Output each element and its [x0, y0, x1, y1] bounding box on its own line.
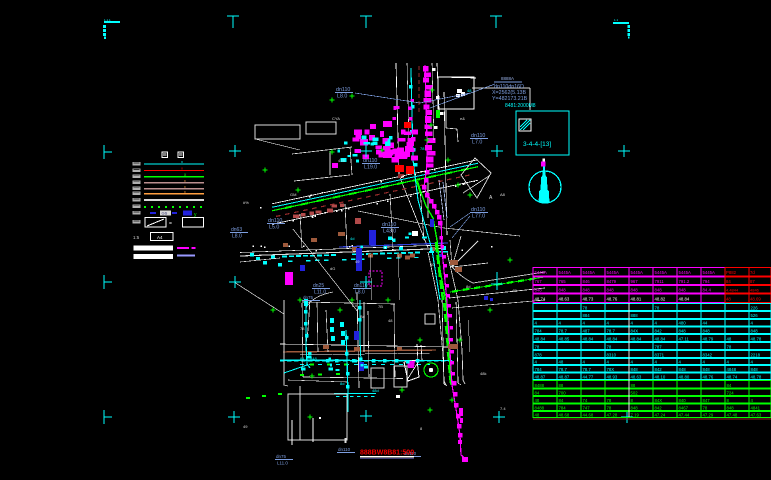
svg-text:48k: 48k [480, 371, 486, 376]
svg-text:CYA: CYA [332, 116, 340, 121]
svg-text:848: 848 [631, 406, 639, 411]
svg-text:L8.0: L8.0 [337, 94, 347, 100]
svg-text:8479: 8479 [607, 279, 617, 284]
svg-text:48.63: 48.63 [559, 297, 570, 302]
svg-text:48.93: 48.93 [607, 375, 618, 380]
svg-text:48.87: 48.87 [535, 375, 546, 380]
svg-text:3-4-4-[13]: 3-4-4-[13] [523, 141, 551, 148]
svg-text:5445A: 5445A [559, 270, 572, 275]
svg-text:x: x [184, 179, 186, 183]
svg-text:Y=482173.21B: Y=482173.21B [492, 96, 528, 102]
svg-text:A4: A4 [157, 235, 163, 240]
svg-text:48.76: 48.76 [703, 375, 714, 380]
svg-text:840: 840 [679, 398, 687, 403]
svg-text:846: 846 [583, 279, 591, 284]
svg-text:x: x [181, 159, 183, 164]
svg-text:848: 848 [631, 288, 639, 293]
svg-text:8467: 8467 [679, 406, 689, 411]
svg-text:47.11: 47.11 [679, 337, 690, 342]
svg-text:47.28: 47.28 [607, 413, 618, 418]
svg-text:784: 784 [535, 367, 543, 372]
svg-text:GM: GM [290, 192, 296, 197]
svg-text:L19.0: L19.0 [364, 165, 377, 171]
svg-text:48.85: 48.85 [559, 337, 570, 342]
svg-text:dn110: dn110 [471, 133, 485, 139]
svg-text:848: 848 [631, 367, 639, 372]
svg-text:44.77: 44.77 [583, 375, 594, 380]
svg-text:88: 88 [559, 383, 564, 388]
svg-text:dn63: dn63 [231, 227, 242, 233]
svg-text:78: 78 [583, 306, 588, 311]
svg-text:848: 848 [703, 329, 711, 334]
svg-text:48: 48 [467, 88, 472, 93]
svg-text:78X: 78X [607, 367, 615, 372]
svg-text:dn75: dn75 [303, 295, 314, 300]
svg-text:848: 848 [679, 367, 687, 372]
svg-text:L5.0: L5.0 [269, 225, 279, 231]
svg-text:48.69: 48.69 [750, 297, 761, 302]
svg-text:784: 784 [535, 329, 543, 334]
svg-text:784: 784 [559, 406, 567, 411]
svg-text:48.87: 48.87 [559, 375, 570, 380]
svg-text:8342: 8342 [703, 353, 713, 358]
svg-text:794: 794 [703, 279, 711, 284]
svg-text:44.68: 44.68 [583, 413, 594, 418]
svg-text:78.7: 78.7 [559, 329, 568, 334]
svg-text:226: 226 [751, 306, 759, 311]
svg-text:5445A: 5445A [655, 270, 668, 275]
svg-text:78: 78 [300, 326, 305, 331]
svg-text:848: 848 [655, 288, 663, 293]
svg-text:8488: 8488 [535, 383, 545, 388]
svg-text:4841: 4841 [751, 406, 761, 411]
svg-text:48: 48 [727, 337, 732, 342]
svg-text:48.84: 48.84 [631, 337, 642, 342]
svg-text:L8.0: L8.0 [232, 234, 242, 240]
svg-text:4d: 4d [350, 236, 354, 241]
svg-text:A8: A8 [500, 192, 506, 197]
svg-text:7.4: 7.4 [500, 406, 506, 411]
svg-text:848: 848 [751, 367, 759, 372]
svg-text:48: 48 [726, 297, 731, 302]
svg-text:48: 48 [559, 360, 564, 365]
svg-text:40: 40 [430, 262, 435, 267]
svg-text:L11.0: L11.0 [277, 461, 288, 466]
svg-text:5445A: 5445A [679, 270, 692, 275]
svg-text:48.10: 48.10 [655, 375, 666, 380]
svg-text:78.7: 78.7 [559, 367, 568, 372]
svg-text:526: 526 [751, 313, 759, 318]
svg-text:48.84: 48.84 [679, 297, 690, 302]
svg-text:e&: e& [460, 116, 465, 121]
svg-text:48.73: 48.73 [583, 297, 594, 302]
svg-text:87: 87 [750, 279, 755, 284]
svg-text:1.1.1: 1.1.1 [104, 18, 111, 22]
svg-text:7.19: 7.19 [631, 413, 640, 418]
svg-text:7B: 7B [378, 304, 383, 309]
svg-text:48.76: 48.76 [607, 297, 618, 302]
svg-text:4848: 4848 [727, 367, 737, 372]
svg-text:84: 84 [300, 356, 305, 361]
svg-text:842: 842 [655, 367, 663, 372]
svg-text:502: 502 [631, 391, 639, 396]
svg-text:dn75: dn75 [276, 454, 287, 459]
svg-text:8488: 8488 [535, 406, 545, 411]
svg-text:48.63: 48.63 [631, 375, 642, 380]
svg-text:847: 847 [703, 398, 711, 403]
svg-text:724: 724 [727, 391, 735, 396]
svg-text:47.63: 47.63 [751, 413, 762, 418]
svg-text:5445A: 5445A [535, 270, 548, 275]
svg-text:Bd: Bd [360, 314, 365, 319]
svg-text:8d: 8d [340, 381, 344, 386]
svg-text:L7.0: L7.0 [472, 140, 482, 146]
svg-text:L8.0: L8.0 [355, 290, 365, 296]
svg-text:84: 84 [559, 398, 564, 403]
svg-text:5445A: 5445A [583, 270, 596, 275]
svg-text:49: 49 [243, 424, 248, 429]
svg-text:48.78: 48.78 [751, 375, 762, 380]
svg-text:48.84: 48.84 [655, 337, 666, 342]
svg-text:848: 848 [559, 288, 567, 293]
svg-text:8888A: 8888A [501, 76, 514, 81]
svg-text:48.84: 48.84 [535, 337, 546, 342]
svg-text:878: 878 [535, 353, 543, 358]
svg-text:88: 88 [631, 383, 636, 388]
svg-text:48.78: 48.78 [751, 337, 762, 342]
svg-text:5445A: 5445A [607, 270, 620, 275]
svg-text:765: 765 [559, 279, 567, 284]
svg-text:L77.0: L77.0 [472, 214, 485, 220]
svg-text:78: 78 [703, 406, 708, 411]
svg-text:791.2: 791.2 [679, 279, 690, 284]
svg-text:dn110: dn110 [382, 222, 396, 228]
svg-text:848: 848 [679, 329, 687, 334]
svg-text:848: 848 [727, 406, 735, 411]
svg-text:478: 478 [338, 158, 345, 163]
svg-text:48: 48 [535, 413, 540, 418]
svg-text:48.68: 48.68 [559, 413, 570, 418]
svg-text:dn110: dn110 [471, 207, 485, 213]
svg-text:#%: #% [243, 200, 249, 205]
svg-text:48.84: 48.84 [583, 337, 594, 342]
svg-text:700: 700 [559, 391, 567, 396]
svg-text:dn110: dn110 [268, 218, 282, 224]
svg-text:84: 84 [535, 391, 540, 396]
svg-text:L11.0: L11.0 [314, 290, 326, 296]
svg-text:8481:2000M8: 8481:2000M8 [505, 103, 536, 109]
svg-text:x: x [181, 166, 183, 171]
svg-text:44: 44 [703, 321, 708, 326]
svg-text:=: = [169, 221, 172, 227]
svg-text:5445A: 5445A [631, 270, 644, 275]
svg-text:dn110: dn110 [338, 447, 351, 452]
svg-text:842: 842 [655, 406, 663, 411]
svg-text:787: 787 [655, 345, 663, 350]
svg-text:47.44: 47.44 [679, 413, 690, 418]
svg-text:1.1: 1.1 [614, 18, 619, 22]
svg-text:78.7: 78.7 [607, 329, 616, 334]
svg-text:x: x [184, 185, 186, 189]
svg-text:48.74: 48.74 [727, 375, 738, 380]
svg-text:84: 84 [727, 383, 732, 388]
svg-text:78.7: 78.7 [583, 367, 592, 372]
svg-text:5445A: 5445A [703, 270, 716, 275]
svg-text:848: 848 [703, 367, 711, 372]
svg-text:d48: d48 [310, 356, 317, 361]
svg-text:L43.0: L43.0 [383, 229, 396, 235]
svg-text:4846: 4846 [750, 288, 760, 293]
svg-text:EX: EX [352, 303, 358, 308]
svg-text:47.29: 47.29 [703, 413, 714, 418]
svg-text:78: 78 [607, 398, 612, 403]
svg-text:888BW8B81:500: 888BW8B81:500 [360, 450, 414, 457]
svg-text:967: 967 [631, 279, 639, 284]
svg-text:47.48: 47.48 [727, 413, 738, 418]
svg-text:GS: GS [162, 211, 168, 216]
svg-text:74: 74 [583, 398, 588, 403]
svg-text:48.81: 48.81 [631, 297, 642, 302]
svg-text:48.80: 48.80 [679, 375, 690, 380]
svg-text:487: 487 [583, 329, 591, 334]
svg-text:48.84: 48.84 [607, 337, 618, 342]
svg-text:78: 78 [655, 306, 660, 311]
svg-text:8371: 8371 [655, 353, 665, 358]
svg-text:1:5: 1:5 [133, 235, 140, 240]
svg-text:dn110: dn110 [336, 87, 350, 93]
svg-text:8d: 8d [466, 284, 470, 289]
svg-text:48d: 48d [372, 388, 379, 393]
svg-text:8310: 8310 [607, 353, 617, 358]
svg-text:747: 747 [583, 406, 591, 411]
svg-text:78: 78 [535, 345, 540, 350]
svg-text:49: 49 [355, 259, 360, 264]
svg-text:48: 48 [388, 318, 393, 323]
svg-text:78: 78 [607, 345, 612, 350]
svg-text:480: 480 [679, 321, 687, 326]
svg-text:48.79: 48.79 [703, 337, 714, 342]
svg-text:84X: 84X [655, 398, 663, 403]
svg-text:888: 888 [631, 313, 639, 318]
svg-text:884: 884 [583, 313, 591, 318]
svg-text:84.4: 84.4 [703, 288, 712, 293]
svg-text:848: 848 [607, 288, 615, 293]
svg-text:2218: 2218 [751, 353, 761, 358]
svg-text:848: 848 [535, 288, 543, 293]
svg-text:84X: 84X [631, 329, 639, 334]
svg-text:84: 84 [726, 279, 731, 284]
svg-text:848: 848 [679, 288, 687, 293]
svg-text:78: 78 [420, 146, 425, 151]
svg-text:842: 842 [655, 329, 663, 334]
svg-text:4B: 4B [512, 288, 517, 293]
svg-text:48: 48 [535, 398, 540, 403]
svg-text:7d: 7d [750, 270, 755, 275]
svg-text:48.74: 48.74 [535, 297, 546, 302]
svg-text:47.24: 47.24 [655, 413, 666, 418]
svg-text:848: 848 [583, 288, 591, 293]
svg-text:767: 767 [535, 279, 543, 284]
svg-text:P882: P882 [726, 270, 737, 275]
svg-text:x: x [184, 190, 186, 194]
svg-text:78: 78 [727, 345, 732, 350]
svg-text:4.4844: 4.4844 [726, 288, 739, 293]
svg-text:78: 78 [607, 406, 612, 411]
svg-text:dG: dG [330, 266, 335, 271]
svg-text:48.82: 48.82 [655, 297, 666, 302]
svg-text:dn110: dn110 [363, 158, 377, 164]
svg-text:7911: 7911 [655, 279, 665, 284]
svg-text:dn25: dn25 [313, 283, 324, 289]
svg-text:848: 848 [751, 329, 759, 334]
